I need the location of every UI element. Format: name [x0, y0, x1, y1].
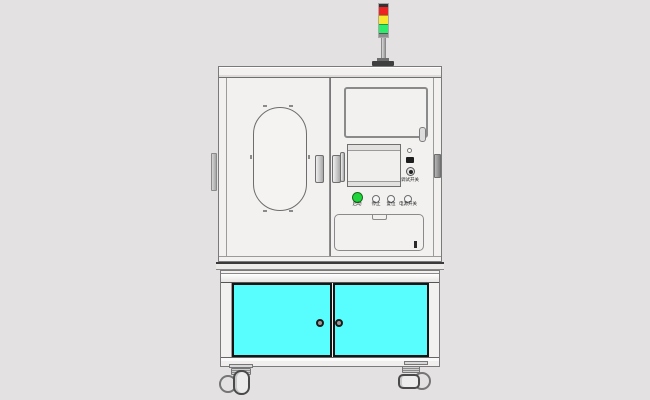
hmi-bottom-bar: [348, 181, 400, 186]
hmi-screen[interactable]: [347, 144, 401, 187]
lower-cabinet: [220, 270, 440, 367]
right-side-handle[interactable]: [434, 154, 441, 178]
start-button-group: 启动: [347, 193, 367, 208]
upper-top-rail: [219, 67, 441, 78]
door-knob-right[interactable]: [335, 319, 343, 327]
lower-top-rail: [221, 273, 439, 283]
upper-right-window: [344, 87, 428, 138]
upper-bottom-line: [219, 256, 441, 257]
hmi-side-handle[interactable]: [340, 152, 345, 182]
right-caster-plate: [404, 361, 428, 365]
hmi-display[interactable]: [348, 151, 400, 181]
left-side-handle[interactable]: [211, 153, 217, 191]
lower-right-post: [428, 283, 439, 357]
door-divider: [330, 78, 331, 256]
tower-green-lamp: [379, 24, 388, 33]
door-knob-left[interactable]: [316, 319, 324, 327]
lower-left-post: [221, 283, 232, 357]
tower-pole: [381, 38, 386, 59]
tray-tab[interactable]: [372, 215, 387, 220]
worktable-edge: [216, 262, 444, 270]
stop-button-label: 停止: [372, 203, 381, 208]
start-button-label: 启动: [353, 203, 362, 208]
tower-yellow-lamp: [379, 15, 388, 24]
upper-cabinet: 调试开关 启动 停止 复位 电源开关: [218, 66, 442, 262]
window-clip: [250, 155, 252, 159]
usb-port[interactable]: [406, 157, 414, 163]
power-button-label: 电源开关: [399, 203, 417, 208]
upper-left-rail: [219, 78, 227, 256]
window-clip: [263, 210, 267, 212]
key-slot: [409, 170, 413, 174]
indicator-light: [407, 148, 412, 153]
tower-mount: [379, 33, 388, 37]
cabinet-door-right[interactable]: [333, 283, 429, 357]
right-caster-wheel: [398, 374, 420, 389]
left-door-handle[interactable]: [315, 155, 324, 183]
signal-tower-light: [378, 3, 389, 38]
upper-window-handle[interactable]: [419, 127, 426, 142]
stadium-window: [253, 107, 307, 211]
window-clip: [289, 105, 293, 107]
window-clip: [263, 105, 267, 107]
window-clip: [289, 210, 293, 212]
left-caster-wheel: [233, 370, 250, 395]
machine-render: 调试开关 启动 停止 复位 电源开关: [0, 0, 650, 400]
key-switch[interactable]: [406, 167, 415, 176]
window-clip: [308, 155, 310, 159]
lower-tray-panel[interactable]: [334, 214, 424, 251]
tower-red-lamp: [379, 7, 388, 15]
tray-latch: [414, 241, 417, 248]
stop-button-group: 停止: [368, 193, 384, 208]
key-switch-label: 调试开关: [395, 179, 425, 184]
power-button-group: 电源开关: [395, 193, 421, 208]
